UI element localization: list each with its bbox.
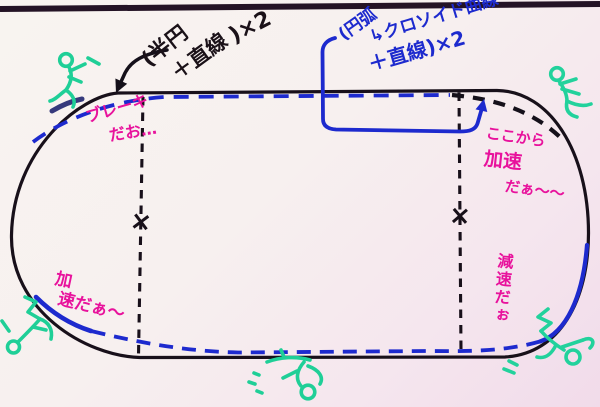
accel-note-line1: 加 [53,271,73,291]
whiteboard: (半円 ＋直線 )×2 (円弧 ↳クロソイド曲線 ＋直線)×2 ブレーキ だお…… [0,0,600,407]
runner-top-right-icon [551,68,591,117]
runner-top-left-icon [50,54,99,107]
racing-line-bottom-dashed [91,331,540,353]
x-mark-right: × [448,200,472,231]
board-frame-edge [0,4,600,9]
x-mark-left: × [128,206,154,239]
track-drawing [0,0,600,407]
accel-here-note-line2: 加速 [483,150,523,173]
